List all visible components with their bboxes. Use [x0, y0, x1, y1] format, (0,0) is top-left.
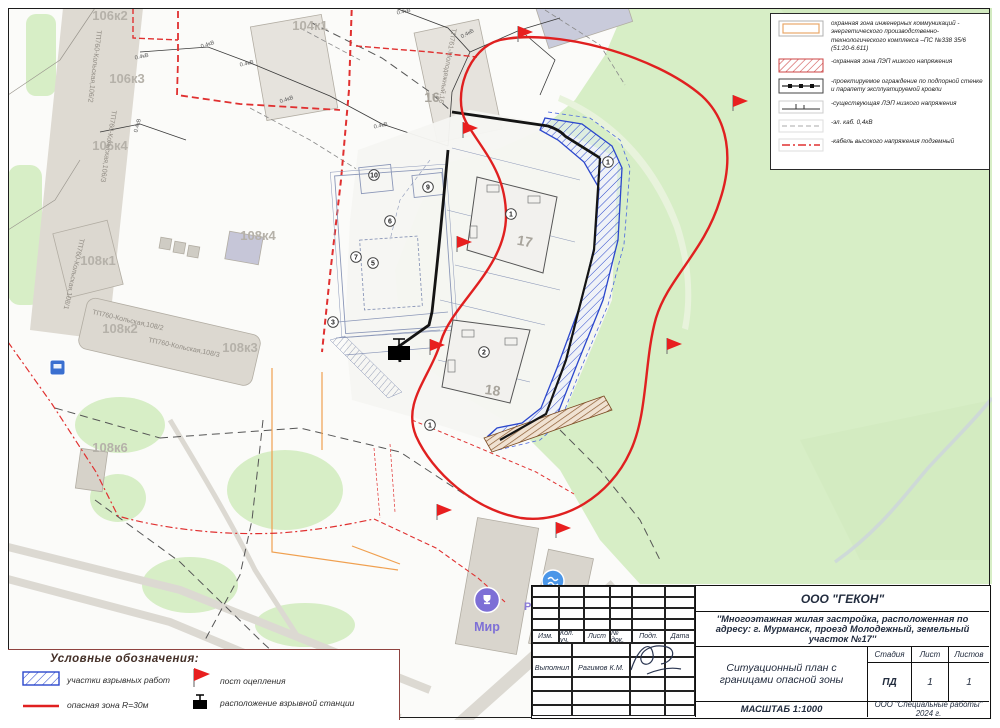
legend-utilities: охранная зона инженерных коммуникаций - … — [770, 13, 990, 170]
building-label: 17 — [516, 232, 534, 250]
svg-text:1: 1 — [509, 212, 513, 219]
designed-fence-icon — [778, 78, 824, 94]
svg-text:9: 9 — [426, 185, 430, 192]
svg-text:6: 6 — [388, 219, 392, 226]
svg-text:5: 5 — [371, 261, 375, 268]
sheet-margin — [0, 720, 1000, 728]
blast-work-area-icon — [22, 671, 60, 686]
hv-underground-cable-icon — [778, 138, 824, 152]
legend-row: -охранная зона ЛЭП низкого напряжения — [778, 58, 984, 73]
signature — [625, 636, 687, 682]
legend-label: участки взрывных работ — [67, 675, 170, 685]
col-kol-uch: Кол. уч. — [559, 630, 584, 643]
sheets-label: Листов — [948, 646, 989, 662]
legend-label: -проектируемое ограждение по подпорной с… — [831, 78, 984, 95]
sheet-label: Лист — [911, 646, 948, 662]
building-label: 108к6 — [92, 440, 127, 455]
utility-protection-zone-icon — [778, 20, 824, 37]
mir-store-label: Мир — [474, 620, 500, 634]
legend-label: -охранная зона ЛЭП низкого напряжения — [831, 58, 952, 66]
blast-station-icon — [190, 692, 210, 710]
scale-label: МАСШТАБ 1:1000 — [695, 701, 867, 717]
legend-label: опасная зона R=30м — [67, 700, 148, 710]
building-label: 108к1 — [80, 253, 115, 268]
svg-text:2: 2 — [482, 350, 486, 357]
building-label: 108к4 — [240, 228, 276, 243]
building-label: 18 — [484, 381, 502, 399]
building-label: 106к3 — [109, 71, 144, 86]
legend-label: охранная зона инженерных коммуникаций - … — [831, 20, 984, 53]
doc-title: Ситуационный план с границами опасной зо… — [695, 646, 867, 701]
sheet-value: 1 — [911, 662, 948, 701]
col-izm: Изм. — [532, 630, 559, 643]
danger-zone-line-icon — [22, 702, 60, 710]
legend-row: -кабель высокого напряжения подземный — [778, 138, 984, 152]
building-label: 104к1 — [292, 18, 327, 33]
stage-label: Стадия — [867, 646, 911, 662]
legend-row: -эл. каб. 0,4кВ — [778, 119, 984, 133]
performed-label: Выполнил — [532, 657, 572, 677]
legend-row: охранная зона инженерных коммуникаций - … — [778, 20, 984, 53]
svg-text:10: 10 — [370, 173, 378, 180]
svg-text:7: 7 — [354, 255, 358, 262]
org-name: ООО "ГЕКОН" — [695, 586, 989, 611]
sheets-value: 1 — [948, 662, 989, 701]
legend-label: расположение взрывной станции — [220, 698, 354, 708]
building-label: 106к2 — [92, 8, 127, 23]
sheet-margin — [0, 0, 8, 728]
sheet-margin — [992, 0, 1000, 728]
legend-row: -проектируемое ограждение по подпорной с… — [778, 78, 984, 95]
legend-symbols: Условные обозначения: участки взрывных р… — [8, 649, 400, 720]
legend-label: -кабель высокого напряжения подземный — [831, 138, 954, 146]
performed-name: Рагимов К.М. — [572, 657, 630, 677]
legend-row: -существующая ЛЭП низкого напряжения — [778, 100, 984, 114]
drawing-sheet: 10 9 6 7 5 3 1 2 1 1 106к2 106к3 106к4 1… — [0, 0, 1000, 728]
svg-text:1: 1 — [606, 160, 610, 167]
mir-store-icon — [475, 588, 500, 613]
stage-value: ПД — [867, 662, 911, 701]
legend-title: Условные обозначения: — [50, 653, 199, 665]
svg-text:3: 3 — [331, 320, 335, 327]
cordon-post-flag-icon — [190, 665, 212, 689]
legend-label: -эл. каб. 0,4кВ — [831, 119, 873, 127]
el-cable-icon — [778, 119, 824, 133]
legend-label: пост оцепления — [220, 676, 286, 686]
title-block: Изм. Кол. уч. Лист № док. Подп. Дата Вып… — [531, 585, 991, 719]
col-list: Лист — [584, 630, 610, 643]
sheet-margin — [0, 0, 1000, 8]
building-label: 108к3 — [222, 340, 257, 355]
legend-label: -существующая ЛЭП низкого напряжения — [831, 100, 957, 108]
project-name: ''Многоэтажная жилая застройка, располож… — [695, 611, 989, 646]
svg-text:1: 1 — [428, 423, 432, 430]
lep-low-voltage-zone-icon — [778, 58, 824, 73]
title-block-revision-grid: Изм. Кол. уч. Лист № док. Подп. Дата — [532, 586, 695, 643]
existing-lep-icon — [778, 100, 824, 114]
company-name: ООО "Специальные работы" 2024 г. — [867, 701, 989, 717]
